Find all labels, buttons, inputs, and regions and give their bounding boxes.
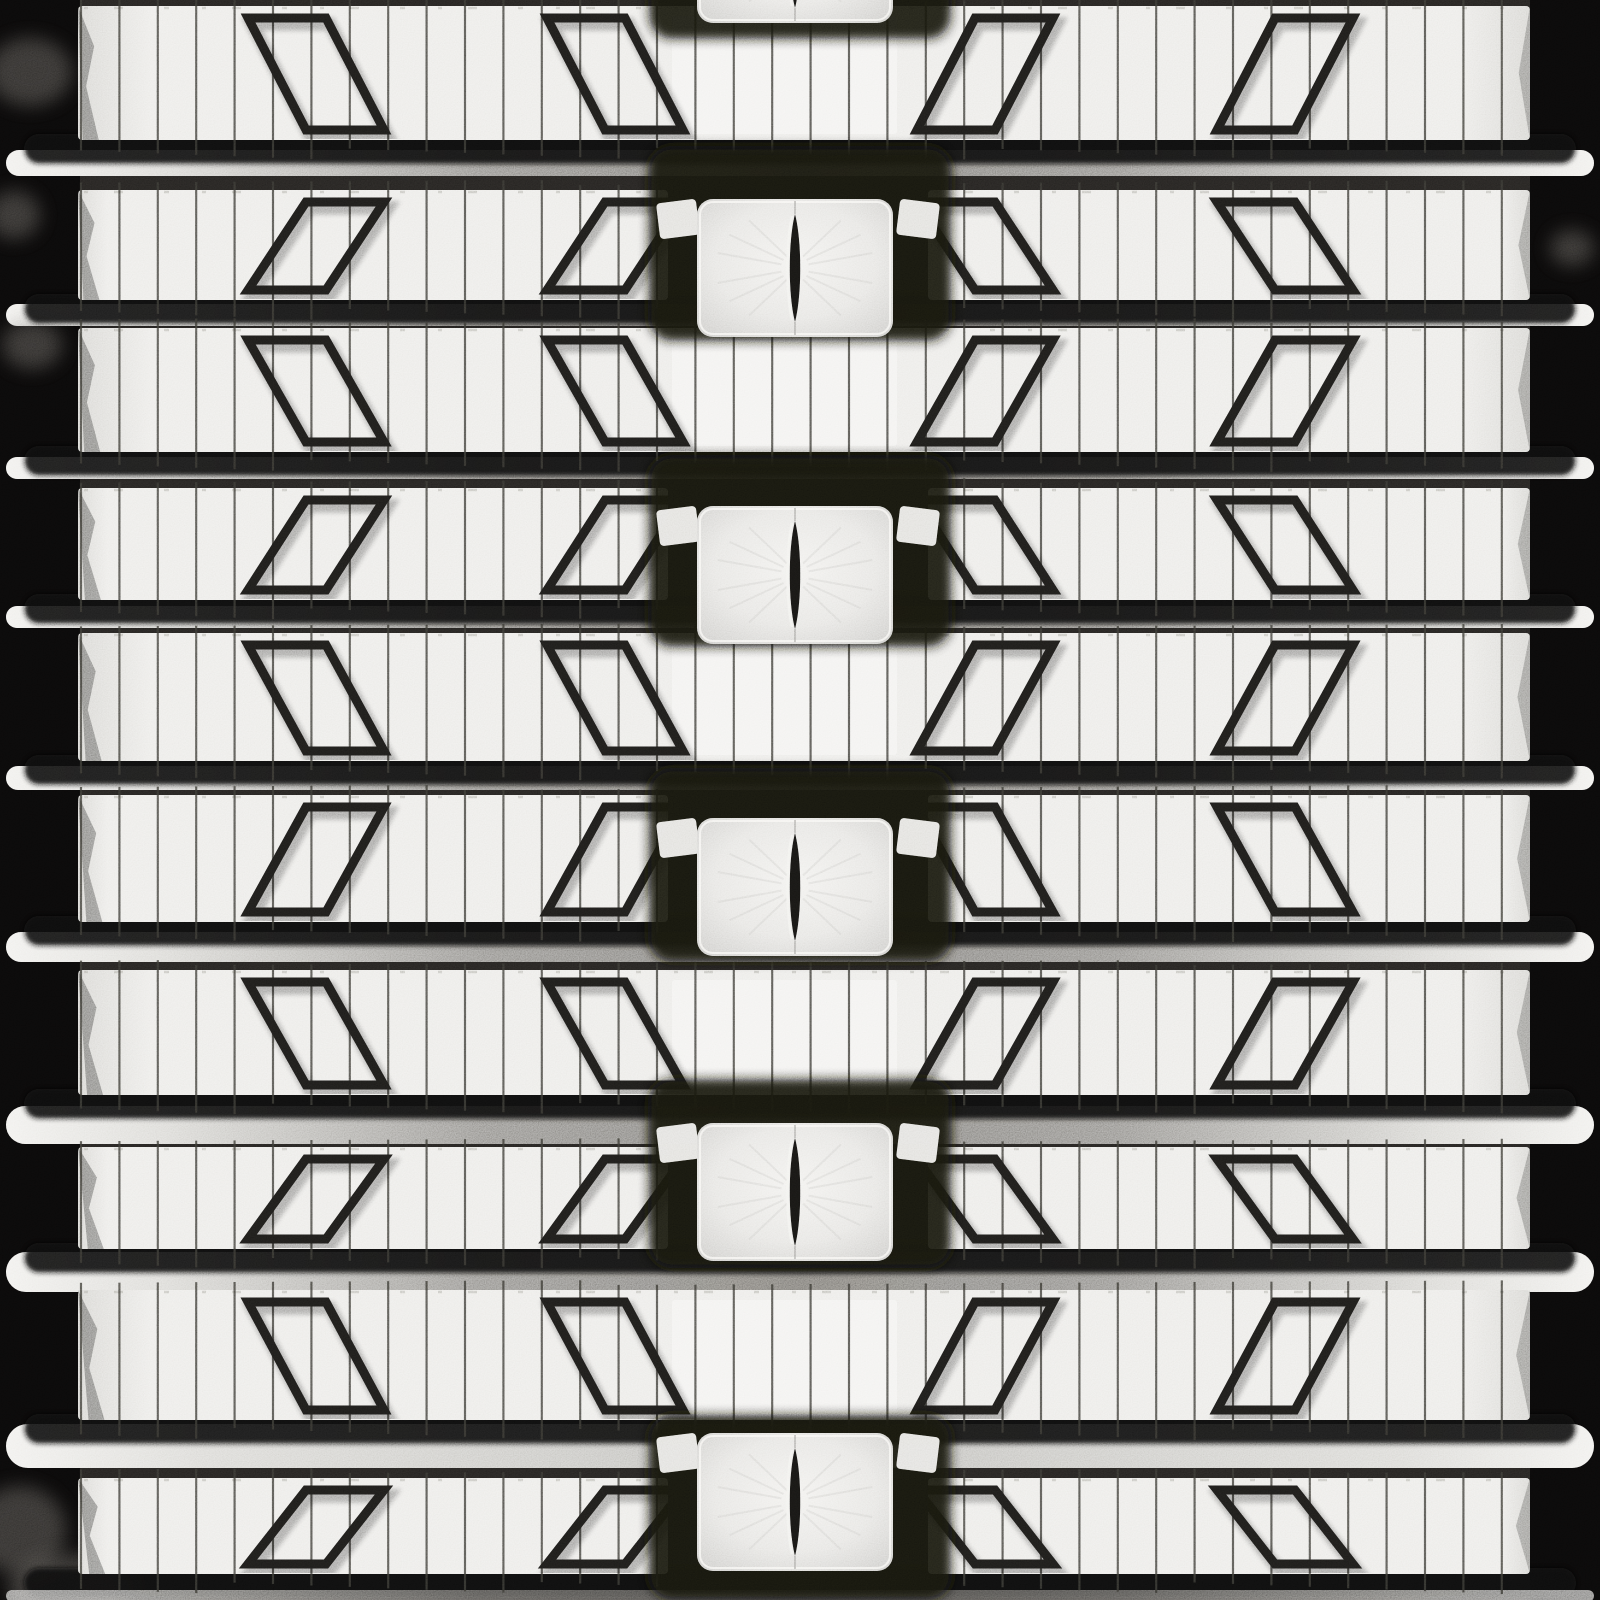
grain-overlay xyxy=(0,0,1600,1600)
screenshot-root xyxy=(0,0,1600,1600)
rubber-track-tread-photo xyxy=(0,0,1600,1600)
tread-scene xyxy=(0,0,1600,1600)
